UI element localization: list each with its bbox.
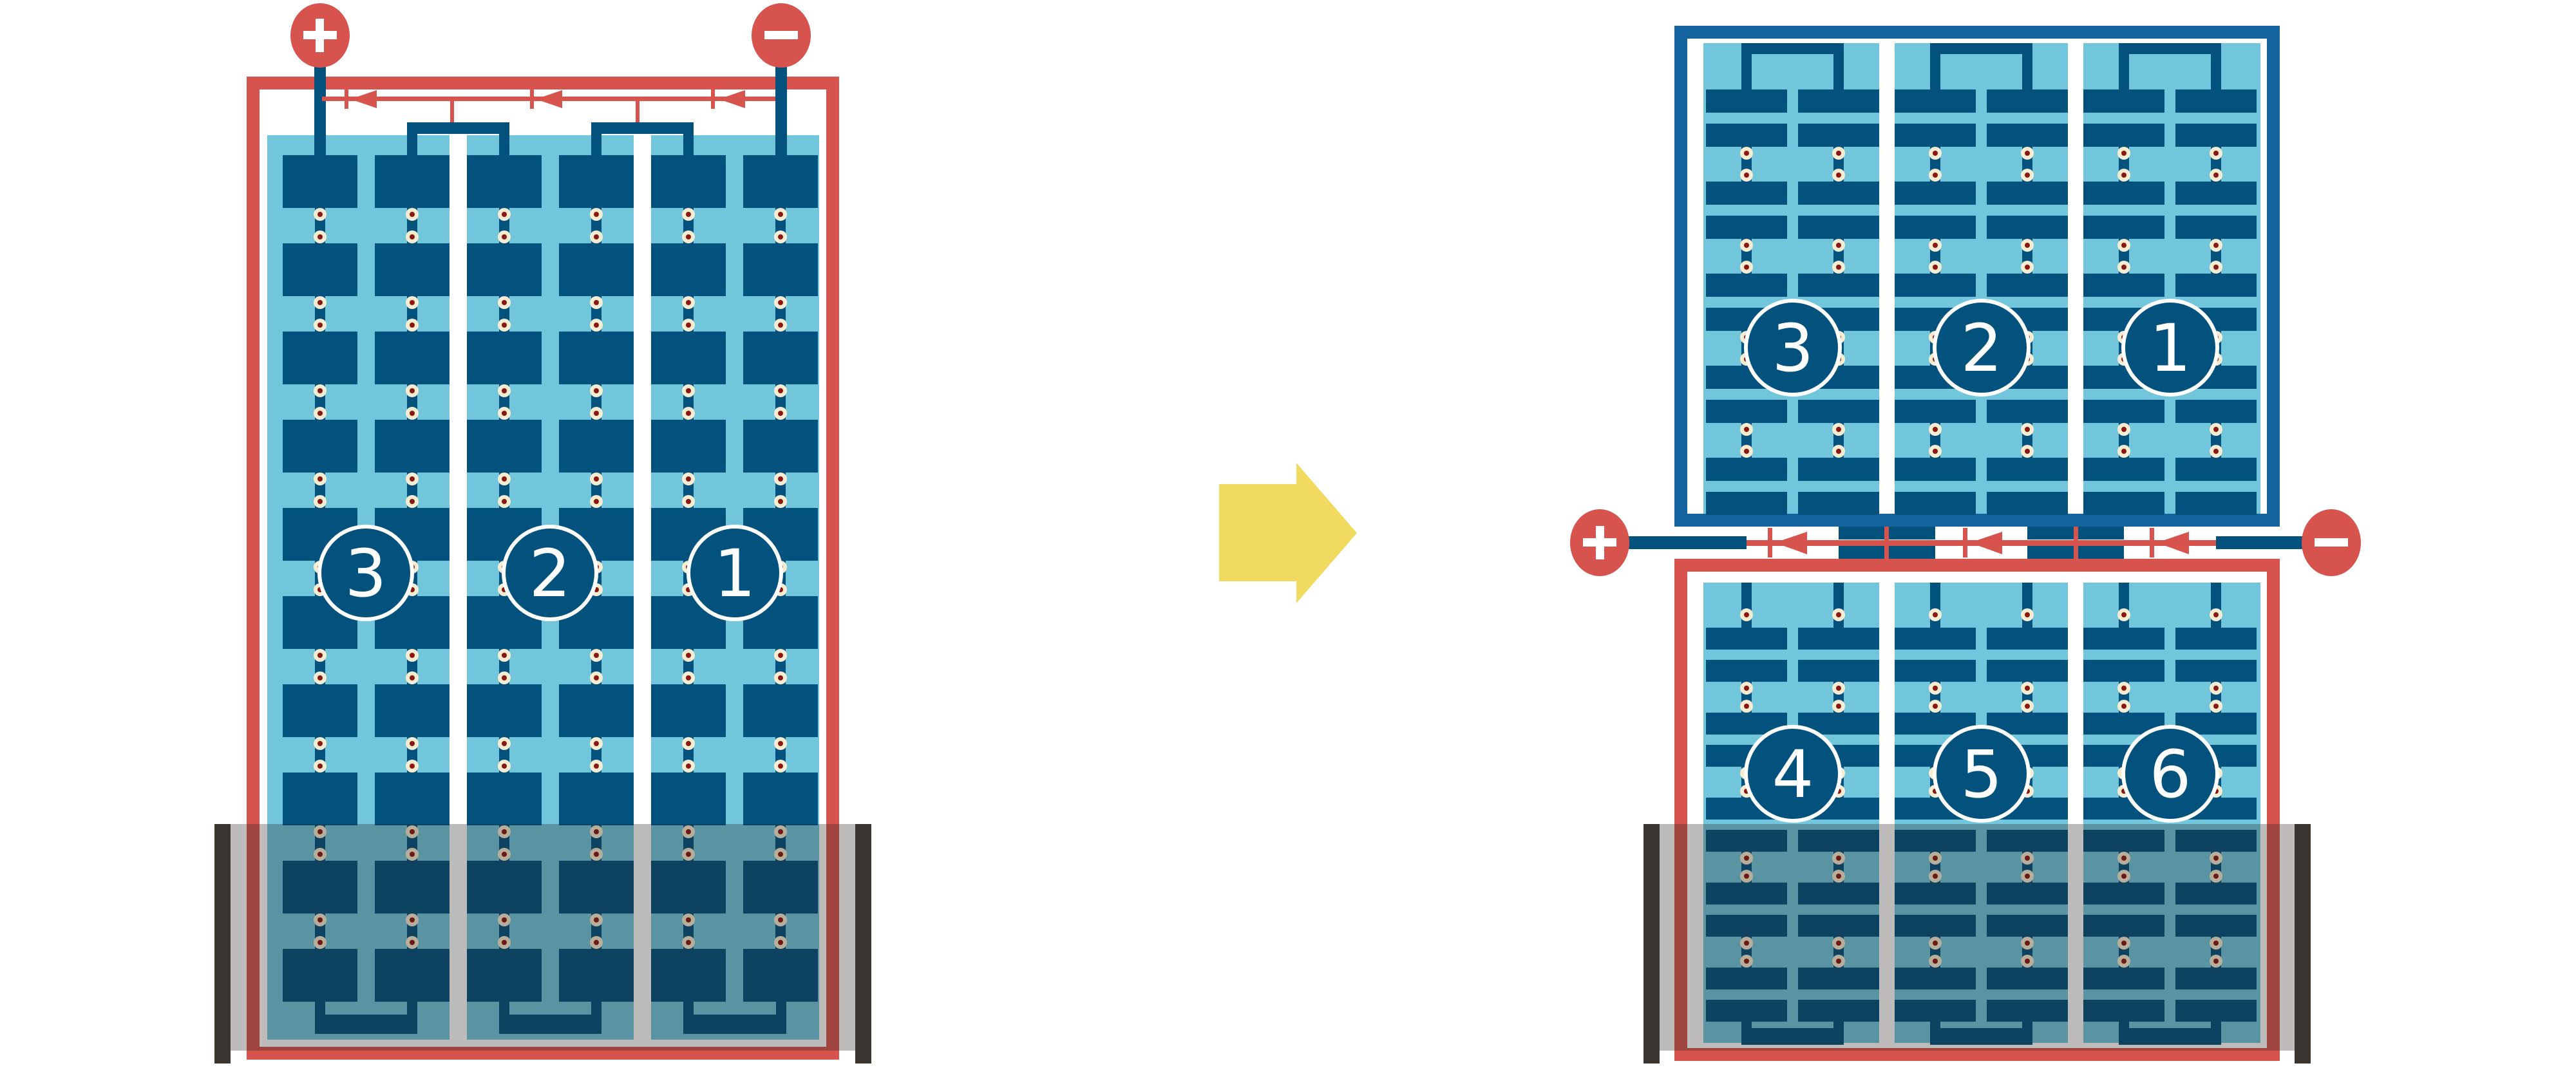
arrow-right-icon xyxy=(1219,463,1357,603)
left-shade-region xyxy=(214,824,871,1063)
string-label: 6 xyxy=(2150,736,2192,813)
string-label: 1 xyxy=(714,536,756,612)
string-label: 3 xyxy=(345,536,387,612)
string-label: 5 xyxy=(1961,736,2003,813)
string-label: 2 xyxy=(529,536,571,612)
string-label: 2 xyxy=(1961,310,2003,387)
shade-bar-right xyxy=(855,824,871,1063)
left-module: 3 2 1 xyxy=(214,3,871,1063)
shade-overlay xyxy=(231,824,855,1051)
shade-bar-left xyxy=(214,824,231,1063)
top-half-string-badges: 3 2 1 xyxy=(1746,301,2217,395)
left-string-badges: 3 2 1 xyxy=(319,527,781,619)
positive-terminal-icon xyxy=(1570,509,1629,576)
right-module: 3 2 1 xyxy=(1570,32,2361,1063)
solar-module-wiring-diagram: 3 2 1 xyxy=(0,0,2576,1068)
right-bypass-diode-bus xyxy=(1747,527,2216,559)
right-shade-region xyxy=(1643,824,2311,1063)
shade-bar-left xyxy=(1643,824,1660,1063)
string-label: 1 xyxy=(2150,310,2192,387)
positive-terminal-icon xyxy=(290,3,350,68)
string-label: 4 xyxy=(1772,736,1814,813)
shade-overlay xyxy=(1660,824,2295,1051)
negative-terminal-icon xyxy=(752,3,811,68)
left-bypass-diode-bus xyxy=(322,89,775,122)
right-module-top-half: 3 2 1 xyxy=(1681,32,2273,520)
bottom-half-string-badges: 4 5 6 xyxy=(1746,727,2217,821)
negative-terminal-icon xyxy=(2302,509,2361,576)
shade-bar-right xyxy=(2295,824,2311,1063)
string-label: 3 xyxy=(1772,310,1814,387)
